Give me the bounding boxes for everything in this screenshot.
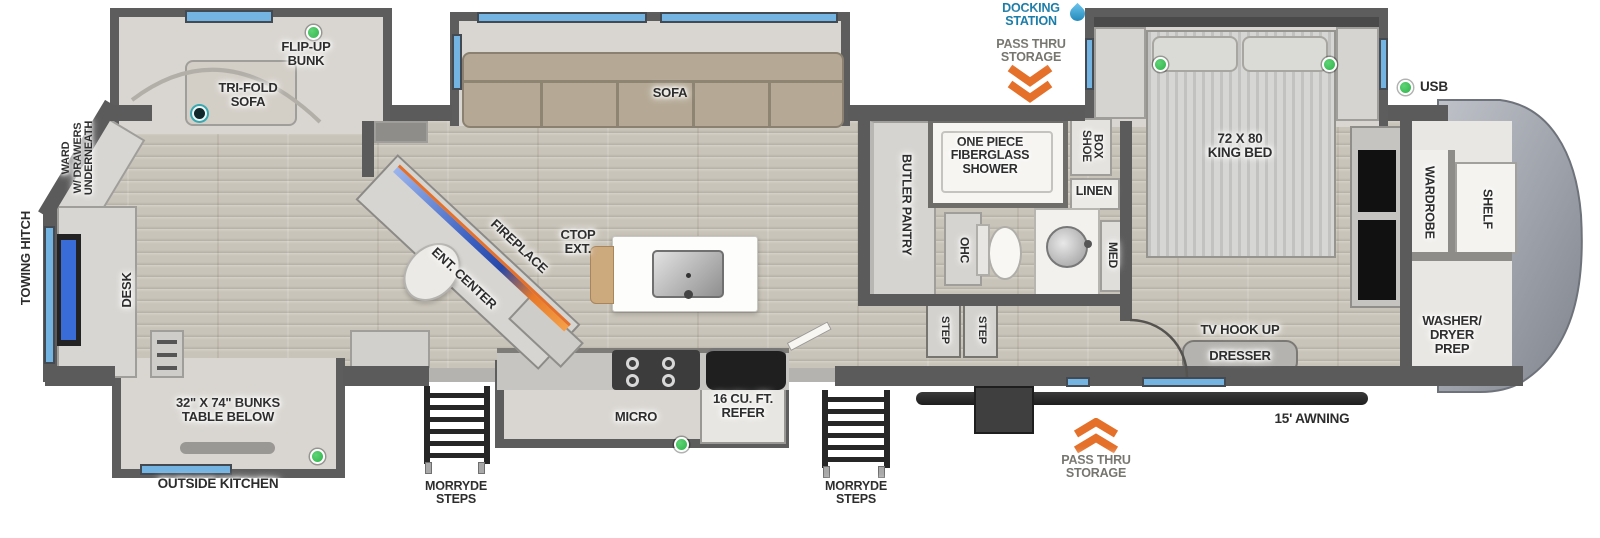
green-led-icon xyxy=(1398,80,1413,95)
bed-slide-window-left xyxy=(1085,38,1094,90)
bedroom-window-small xyxy=(1066,377,1090,387)
label-refer: 16 CU. FT. REFER xyxy=(700,392,786,424)
label-step-right: STEP xyxy=(968,306,994,354)
label-ctop-ext: CTOP EXT. xyxy=(546,228,610,260)
morryde-steps-ladder-main xyxy=(822,390,890,468)
label-king-bed: 72 X 80 KING BED xyxy=(1184,132,1296,166)
sofa-slide-window-right xyxy=(660,12,838,23)
bedroom-tv xyxy=(1358,150,1396,212)
ladder-foot xyxy=(425,462,432,474)
label-shoe-box: SHOE BOX xyxy=(1074,120,1108,172)
label-ward: WARD W/ DRAWERS UNDERNEATH xyxy=(61,110,99,206)
wall-pantry xyxy=(858,121,870,301)
label-towing-hitch: TOWING HITCH xyxy=(19,208,35,308)
label-pass-thru-top: PASS THRU STORAGE xyxy=(993,38,1069,68)
ladder-foot xyxy=(878,466,885,478)
refrigerator-top xyxy=(706,348,786,390)
green-led-icon xyxy=(310,449,325,464)
label-pass-thru-bottom: PASS THRU STORAGE xyxy=(1056,454,1136,484)
label-shower: ONE PIECE FIBERGLASS SHOWER xyxy=(948,136,1032,182)
green-led-icon xyxy=(674,437,689,452)
ladder-foot xyxy=(823,466,830,478)
chevron-down-icon xyxy=(1006,64,1054,104)
monitor-screen xyxy=(61,240,76,340)
label-tv-hook-up: TV HOOK UP xyxy=(1186,323,1294,340)
label-step-left: STEP xyxy=(931,306,957,354)
wall-bottom-rear xyxy=(45,366,115,386)
label-butler-pantry: BUTLER PANTRY xyxy=(893,138,919,272)
bunkroom-closet xyxy=(350,330,430,368)
label-washer-dryer: WASHER/ DRYER PREP xyxy=(1410,314,1494,362)
green-led-icon xyxy=(1153,57,1168,72)
label-desk: DESK xyxy=(120,262,136,318)
rear-door-threshold xyxy=(429,368,495,382)
rear-wall-window xyxy=(44,226,55,364)
island-sink xyxy=(652,250,724,298)
label-flip-up-bunk: FLIP-UP BUNK xyxy=(267,40,345,70)
wall-top-b xyxy=(848,105,1085,121)
desk-drawers xyxy=(150,330,184,378)
wall-top-c xyxy=(1388,105,1448,121)
wall-bottom-a xyxy=(343,366,429,386)
bed-slide-window-right xyxy=(1379,38,1388,90)
bunks-slide-window xyxy=(140,464,232,475)
green-led-icon xyxy=(306,25,321,40)
label-awning: 15' AWNING xyxy=(1262,412,1362,429)
rv-floorplan-diagram: TOWING HITCH WARD W/ DRAWERS UNDERNEATH … xyxy=(0,0,1600,538)
label-docking-station: DOCKING STATION xyxy=(995,2,1067,32)
bunkroom-cabinet xyxy=(374,121,428,143)
sofa-slide-window-left xyxy=(477,12,647,23)
headboard-wall xyxy=(1094,17,1379,27)
closet-divider-v xyxy=(1448,150,1455,254)
label-bunks: 32" X 74" BUNKS TABLE BELOW xyxy=(150,396,306,428)
wardrobe-opening xyxy=(1358,220,1396,300)
sofa-cushion-seam xyxy=(540,80,543,126)
label-morryde-steps-main: MORRYDE STEPS xyxy=(818,480,894,512)
bedroom-window xyxy=(1142,377,1226,387)
label-dresser: DRESSER xyxy=(1196,349,1284,365)
label-sofa: SOFA xyxy=(642,86,698,104)
drawer-handle xyxy=(157,366,177,370)
wall-bath-bottom xyxy=(858,294,1126,306)
nightstand-left xyxy=(1094,27,1146,119)
label-outside-kitchen: OUTSIDE KITCHEN xyxy=(148,477,288,495)
label-usb: USB xyxy=(1420,80,1460,97)
bath-faucet xyxy=(1084,240,1092,248)
sofa-cushion-seam xyxy=(616,80,619,126)
range-stove xyxy=(612,350,700,390)
label-linen: LINEN xyxy=(1063,185,1125,201)
ladder-foot xyxy=(478,462,485,474)
bed-pillow-right xyxy=(1242,36,1328,72)
drawer-handle xyxy=(157,353,177,357)
wall-bunkroom-stub xyxy=(362,121,374,177)
bunk-table xyxy=(180,442,275,454)
bath-sink-bowl xyxy=(1046,226,1088,268)
morryde-steps-ladder-rear xyxy=(424,386,490,464)
sofa-cushion-seam xyxy=(768,80,771,126)
label-med: MED xyxy=(1100,228,1125,282)
label-micro: MICRO xyxy=(600,410,672,427)
bunk-slide-window xyxy=(185,10,273,23)
burner xyxy=(626,374,639,387)
drawer-handle xyxy=(157,340,177,344)
label-wardrobe: WARDROBE xyxy=(1416,148,1442,256)
label-tri-fold-sofa: TRI-FOLD SOFA xyxy=(203,81,293,111)
sink-faucet xyxy=(684,290,693,299)
label-morryde-steps-rear: MORRYDE STEPS xyxy=(418,480,494,512)
label-shelf: SHELF xyxy=(1474,176,1500,242)
sink-drain xyxy=(686,273,691,278)
desk-monitor xyxy=(57,234,81,346)
green-led-icon xyxy=(1322,57,1337,72)
wall-top-a xyxy=(390,105,452,121)
sofa-back-seam xyxy=(464,80,842,83)
burner xyxy=(662,357,675,370)
label-ohc: OHC xyxy=(951,223,977,277)
chevron-up-icon xyxy=(1072,418,1120,456)
entry-door-threshold xyxy=(789,368,835,382)
burner xyxy=(662,374,675,387)
utility-box xyxy=(974,386,1034,434)
sofa-slide-side-window xyxy=(452,34,462,90)
burner xyxy=(626,357,639,370)
toilet-bowl xyxy=(988,226,1022,280)
nightstand-right xyxy=(1336,27,1379,121)
wall-bedroom xyxy=(1120,121,1132,321)
